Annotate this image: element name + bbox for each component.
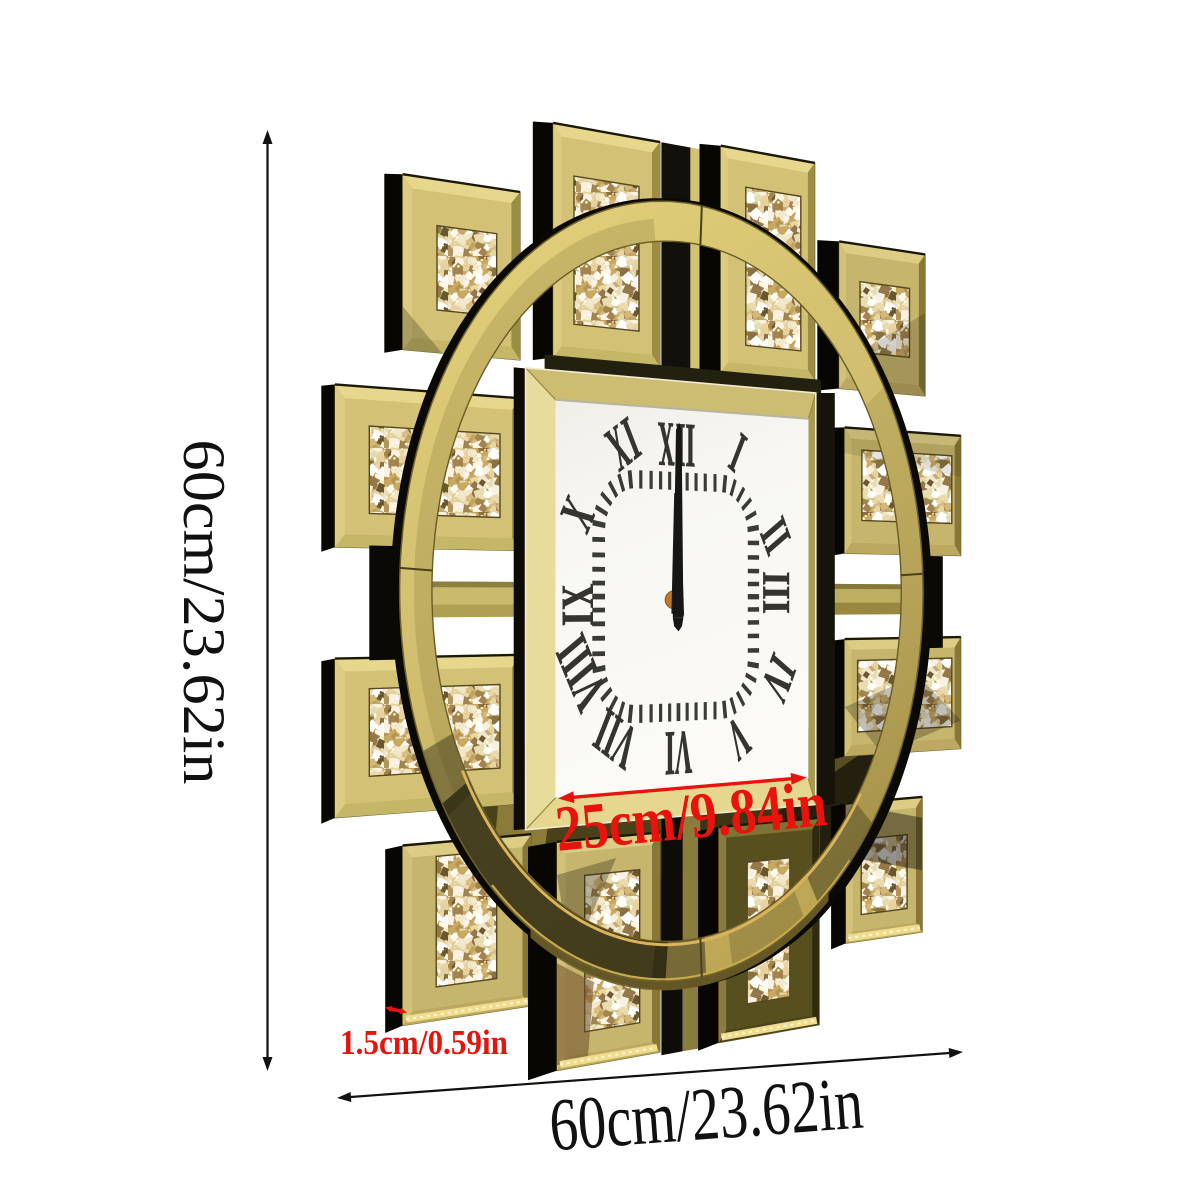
svg-text:60cm/23.62in: 60cm/23.62in [171, 440, 237, 785]
svg-text:1.5cm/0.59in: 1.5cm/0.59in [340, 1023, 508, 1062]
